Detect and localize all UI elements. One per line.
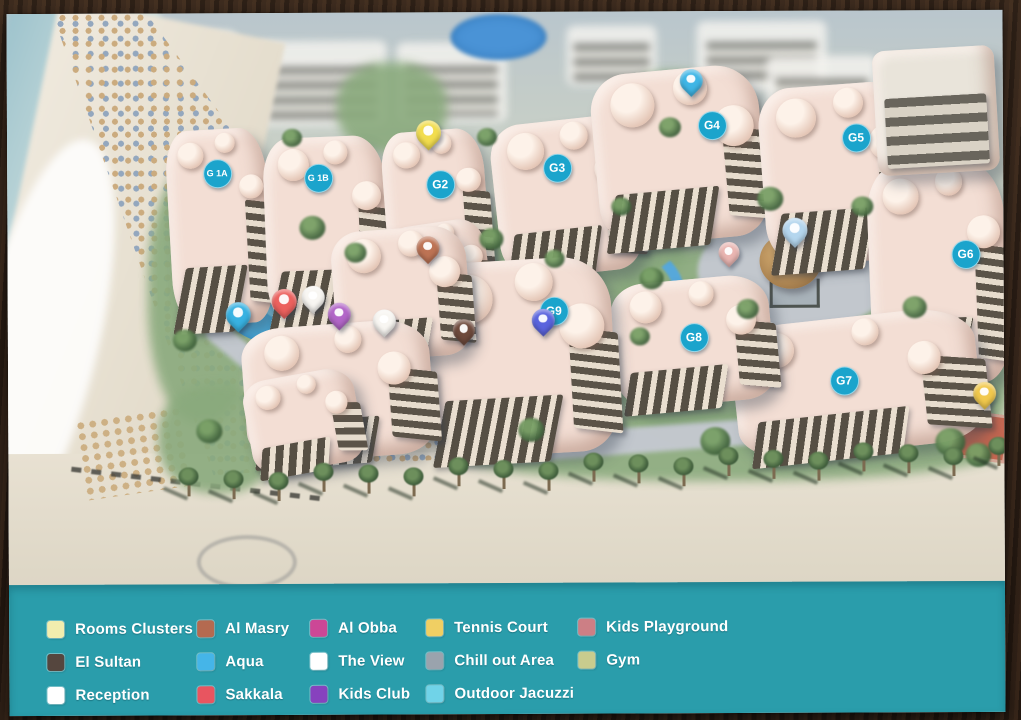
legend-swatch-icon <box>47 653 64 670</box>
legend-item-kids-playground: Kids Playground <box>578 617 728 636</box>
legend-column-1: Rooms ClustersEl SultanReception <box>47 585 48 716</box>
legend-swatch-icon <box>578 618 595 635</box>
legend-swatch-icon <box>47 620 64 637</box>
violet-pin <box>327 303 350 326</box>
legend-label: Tennis Court <box>454 618 548 635</box>
legend-item-rooms-clusters: Rooms Clusters <box>47 619 193 638</box>
legend-label: The View <box>338 652 404 669</box>
legend-swatch-icon <box>426 652 443 669</box>
red-pin <box>271 288 296 313</box>
rose-pin-gazebo <box>718 242 739 263</box>
legend-item-sakkala: Sakkala <box>197 685 282 703</box>
legend-item-al-masry: Al Masry <box>197 619 289 637</box>
legend-item-kids-club: Kids Club <box>310 684 410 702</box>
legend-swatch-icon <box>426 685 443 702</box>
sienna-pin <box>416 236 439 259</box>
legend-item-reception: Reception <box>47 686 149 704</box>
legend-label: Al Masry <box>225 619 289 636</box>
legend-band: Rooms ClustersEl SultanReceptionAl Masry… <box>9 581 1006 716</box>
legend-swatch-icon <box>310 685 327 702</box>
legend-swatch-icon <box>426 619 443 636</box>
resort-map-sheet: G 1AG 1BG2G3G4G5G6G7G8G9 Rooms ClustersE… <box>6 10 1005 716</box>
legend-swatch-icon <box>47 686 64 703</box>
legend-label: Gym <box>606 651 640 668</box>
legend-label: Rooms Clusters <box>75 620 193 638</box>
legend-swatch-icon <box>197 620 214 637</box>
cyan-pin-pool <box>225 302 250 327</box>
legend-swatch-icon <box>310 619 327 636</box>
legend-label: Kids Club <box>338 685 410 702</box>
legend-swatch-icon <box>310 652 327 669</box>
legend-swatch-icon <box>197 686 214 703</box>
yellow-pin-west <box>415 120 440 145</box>
legend-column-4: Tennis CourtChill out AreaOutdoor Jacuzz… <box>426 583 427 714</box>
legend-item-gym: Gym <box>578 650 640 668</box>
legend-column-3: Al ObbaThe ViewKids Club <box>310 584 311 715</box>
legend-label: El Sultan <box>75 653 141 670</box>
map-pin-layer <box>6 10 1004 585</box>
legend-item-el-sultan: El Sultan <box>47 653 141 671</box>
legend-label: Outdoor Jacuzzi <box>454 684 574 702</box>
legend-label: Aqua <box>225 653 263 670</box>
legend-column-5: Kids PlaygroundGym <box>578 583 579 714</box>
yellow-pin-tennis <box>973 382 996 405</box>
resort-map: G 1AG 1BG2G3G4G5G6G7G8G9 <box>6 10 1004 585</box>
legend-swatch-icon <box>197 653 214 670</box>
legend-swatch-icon <box>578 651 595 668</box>
legend-item-outdoor-jacuzzi: Outdoor Jacuzzi <box>426 684 574 703</box>
white-pin-central <box>372 309 395 332</box>
legend-label: Sakkala <box>225 685 282 702</box>
legend-label: Kids Playground <box>606 618 728 636</box>
legend-label: Chill out Area <box>454 651 554 668</box>
legend-item-the-view: The View <box>310 651 404 669</box>
legend-item-tennis-court: Tennis Court <box>426 618 548 637</box>
cyan-pin-north <box>679 69 702 92</box>
legend-label: Al Obba <box>338 619 397 636</box>
legend-item-chill-out-area: Chill out Area <box>426 651 554 670</box>
legend-label: Reception <box>75 686 149 703</box>
brown-pin <box>453 319 475 341</box>
white-pin-pool <box>301 286 324 309</box>
indigo-pin <box>531 309 554 332</box>
legend-column-2: Al MasryAquaSakkala <box>197 584 198 715</box>
legend-item-aqua: Aqua <box>197 652 263 670</box>
lightblue-pin-gazebo <box>782 217 807 242</box>
legend-item-al-obba: Al Obba <box>310 618 397 636</box>
